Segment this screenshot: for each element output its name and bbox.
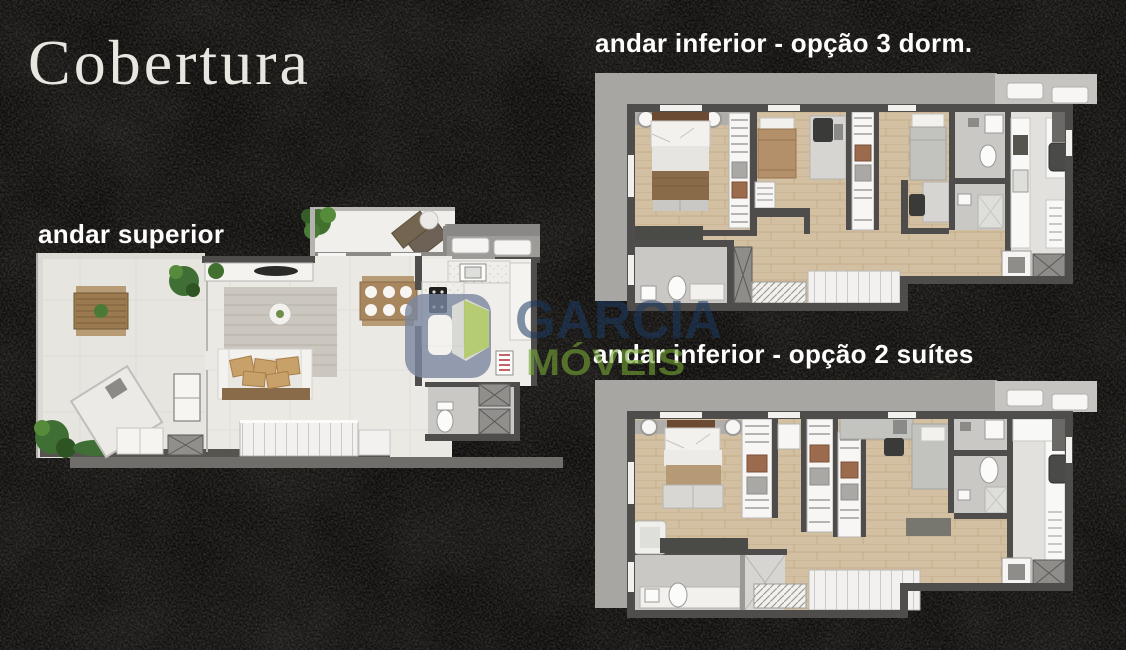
svg-text:MÓVEIS: MÓVEIS [526,341,685,383]
svg-text:GARCIA: GARCIA [515,290,722,350]
